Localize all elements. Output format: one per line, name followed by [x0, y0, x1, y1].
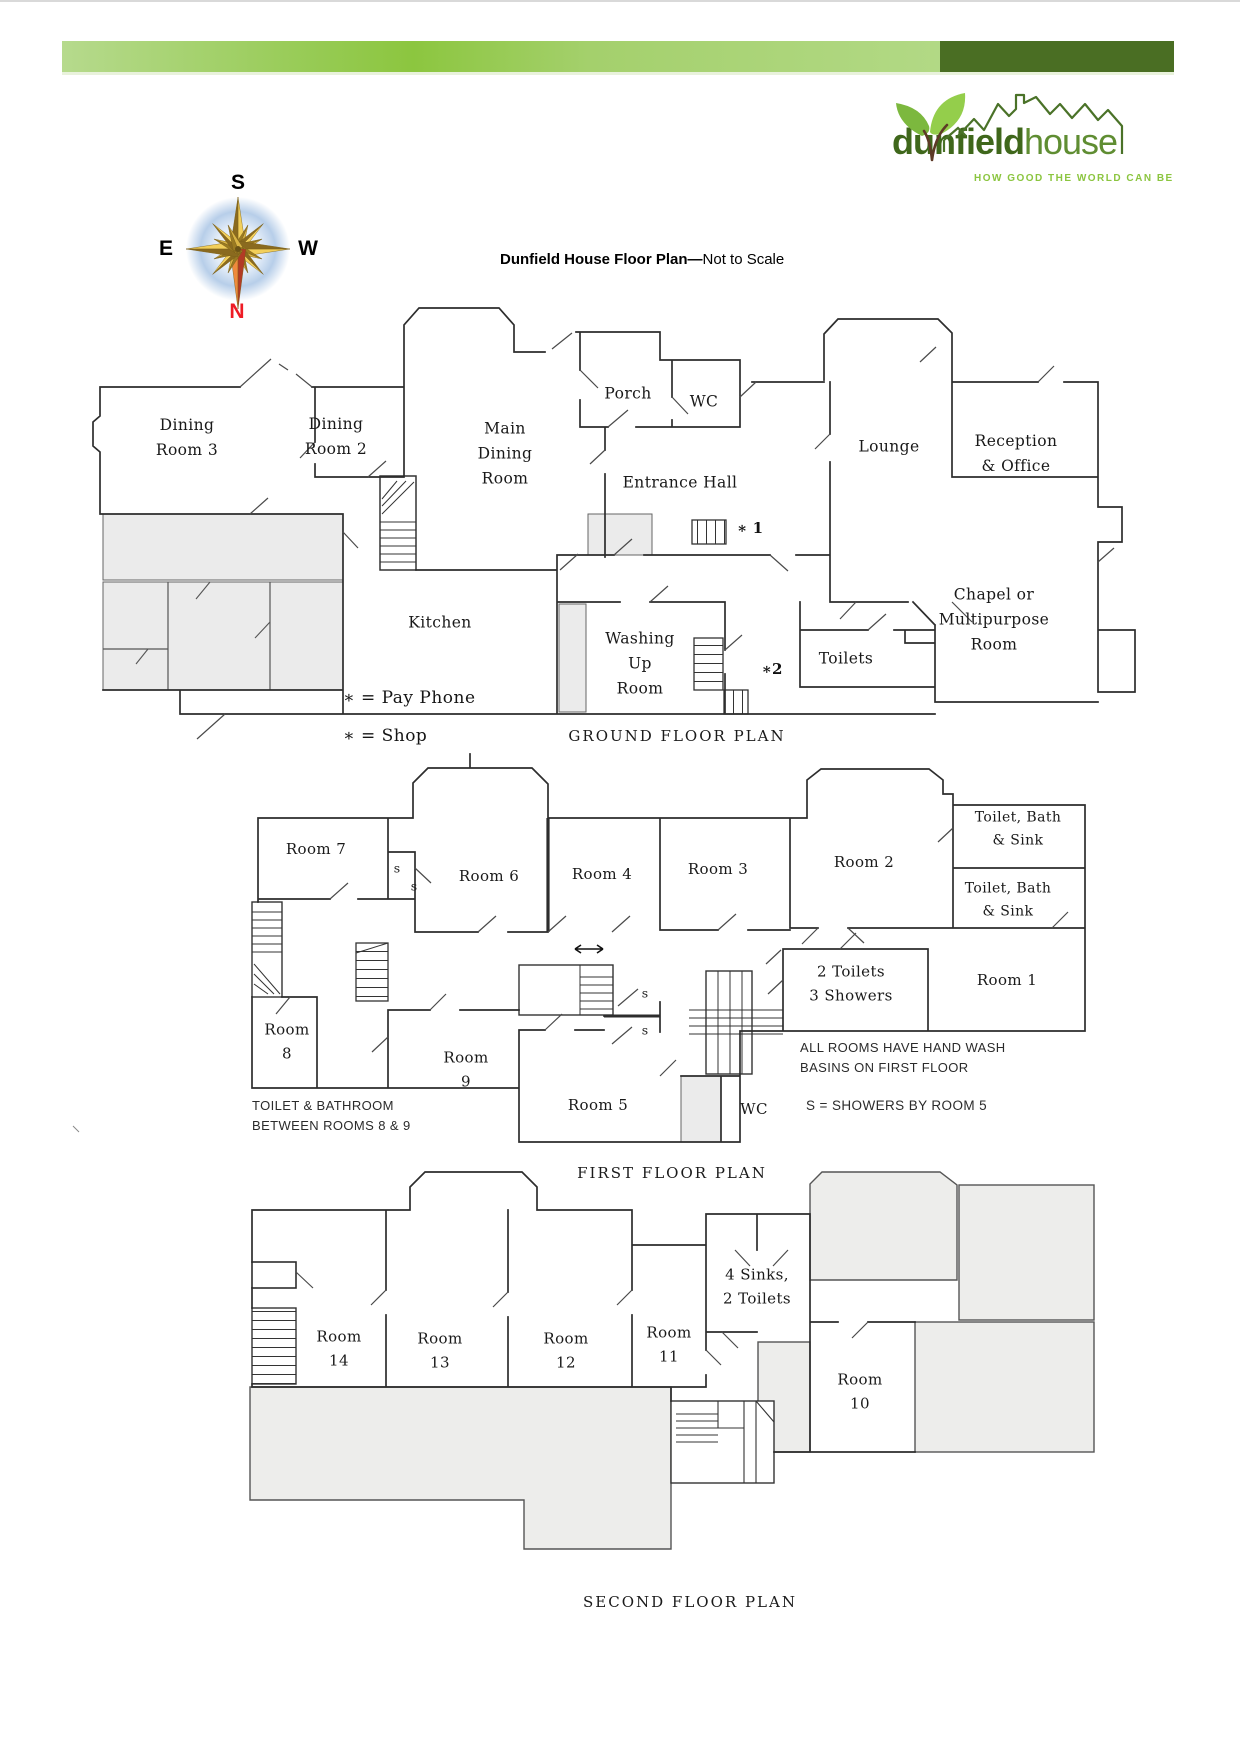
room-label-room10: Room 10 [837, 1368, 882, 1417]
room-label-room14: Room 14 [316, 1325, 361, 1374]
room-label-porch: Porch [604, 381, 651, 406]
logo-roofline-icon [944, 95, 1122, 154]
shower-mark-c: s [642, 986, 648, 1001]
shop-marker: ∗2 [762, 660, 783, 678]
room-label-room13: Room 13 [417, 1327, 462, 1376]
room-label-chapel: Chapel or Multipurpose Room [939, 582, 1050, 657]
logo-leaf-icon [896, 93, 965, 160]
room-label-toilet-bath-sink-mid: Toilet, Bath & Sink [965, 877, 1052, 922]
shower-mark-b: s [411, 879, 417, 894]
first-floor-caption: FIRST FLOOR PLAN [577, 1164, 767, 1182]
room-label-room1: Room 1 [977, 968, 1037, 992]
room-label-room3: Room 3 [688, 857, 748, 881]
room-label-toilets-ground: Toilets [819, 646, 874, 671]
floor-plan-page: { "colors": { "accent_light": "#b6da8d",… [0, 0, 1240, 1756]
compass-rose-icon [186, 197, 290, 309]
room-label-dining-room-2: Dining Room 2 [305, 412, 367, 462]
room-label-lounge: Lounge [858, 434, 919, 459]
note-toilet-bathroom: TOILET & BATHROOM BETWEEN ROOMS 8 & 9 [252, 1096, 411, 1136]
note-showers: S = SHOWERS BY ROOM 5 [806, 1096, 987, 1117]
room-label-room12: Room 12 [543, 1327, 588, 1376]
room-label-room4: Room 4 [572, 862, 632, 886]
room-label-room11: Room 11 [646, 1321, 691, 1370]
room-label-washing-up-room: Washing Up Room [605, 626, 674, 701]
room-label-main-dining-room: Main Dining Room [478, 416, 533, 491]
first-floor-plan-art [252, 754, 1085, 1142]
room-label-room9: Room 9 [443, 1046, 488, 1095]
room-label-wc-first: WC [740, 1097, 768, 1121]
room-label-dining-room-3: Dining Room 3 [156, 413, 218, 463]
room-label-entrance-hall: Entrance Hall [623, 470, 738, 495]
room-label-room6: Room 6 [459, 864, 519, 888]
shower-mark-a: s [394, 861, 400, 876]
scan-artifact-mark [73, 1126, 79, 1132]
ground-floor-caption: GROUND FLOOR PLAN [568, 727, 785, 745]
room-label-room7: Room 7 [286, 837, 346, 861]
note-hand-wash: ALL ROOMS HAVE HAND WASH BASINS ON FIRST… [800, 1038, 1006, 1078]
shower-mark-d: s [642, 1023, 648, 1038]
room-label-reception-office: Reception & Office [975, 429, 1058, 479]
legend-pay-phone: ∗ = Pay Phone [343, 688, 476, 708]
pay-phone-marker: ∗ 1 [737, 519, 763, 537]
room-label-room2: Room 2 [834, 850, 894, 874]
room-label-room5: Room 5 [568, 1093, 628, 1117]
room-label-sinks-toilets: 4 Sinks, 2 Toilets [723, 1263, 791, 1312]
room-label-kitchen: Kitchen [408, 610, 471, 635]
room-label-toilets-showers: 2 Toilets 3 Showers [809, 960, 892, 1009]
second-floor-caption: SECOND FLOOR PLAN [583, 1593, 797, 1611]
room-label-toilet-bath-sink-top: Toilet, Bath & Sink [975, 806, 1062, 851]
legend-shop: ∗ = Shop [343, 726, 427, 746]
room-label-wc-ground: WC [690, 389, 719, 414]
room-label-room8: Room 8 [264, 1018, 309, 1067]
